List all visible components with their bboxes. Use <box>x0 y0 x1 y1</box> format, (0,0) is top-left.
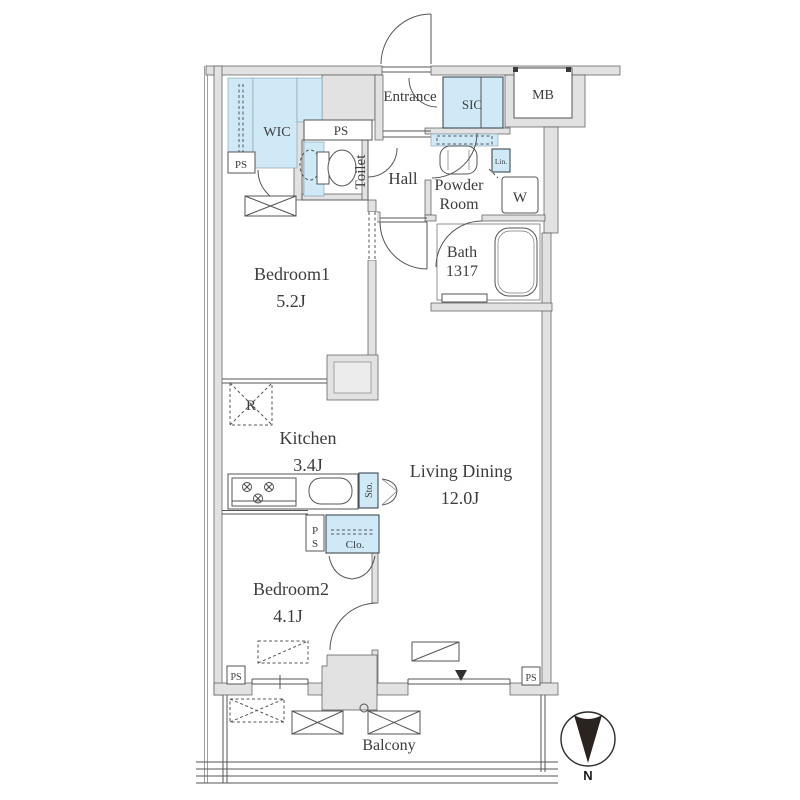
refrigerator-label: R <box>246 398 256 414</box>
mb-label: MB <box>532 88 554 103</box>
wall-segment <box>214 683 252 695</box>
ps-label: PS <box>230 672 241 683</box>
kitchen-size-label: 3.4J <box>293 455 323 475</box>
powder-room-label-1: Powder <box>435 177 485 194</box>
kitchen-area: R Kitchen 3.4J Sto. <box>228 383 397 509</box>
wall-segment <box>377 683 408 695</box>
wall-segment <box>322 75 375 120</box>
toilet-tank <box>317 152 329 184</box>
toilet-room: Toilet <box>300 140 397 200</box>
toilet-bowl <box>328 150 356 186</box>
bathtub <box>495 228 537 296</box>
wall-segment <box>214 66 222 695</box>
floor-plan-page: MB WIC PS PS Entrance SIC Toil <box>0 0 800 800</box>
bedroom2-area: Bedroom2 4.1J <box>253 579 377 663</box>
wall-segment <box>372 553 378 603</box>
north-label: N <box>583 768 592 783</box>
bedroom2-label: Bedroom2 <box>253 579 329 599</box>
powder-room: Powder Room Lin. W <box>431 133 538 213</box>
ps-letter-s: S <box>312 538 318 550</box>
living-window <box>408 670 510 684</box>
storage-label: Sto. <box>364 482 375 498</box>
bedroom2-door-arc <box>330 603 377 650</box>
ps-letter-p: P <box>312 525 318 537</box>
bathroom: Bath 1317 <box>436 221 540 302</box>
ps-label: PS <box>525 673 536 684</box>
wall-segment <box>425 128 510 134</box>
wall-segment <box>431 303 552 311</box>
wall-segment <box>375 75 383 140</box>
kitchen-label: Kitchen <box>280 428 337 448</box>
wall-segment <box>368 260 376 357</box>
hall-door-arc <box>380 222 427 269</box>
meter-box: MB <box>513 67 572 118</box>
washer-label: W <box>513 190 528 206</box>
bedroom2-window <box>252 675 308 689</box>
entrance-area: Entrance <box>381 14 437 137</box>
ps-label: PS <box>334 123 348 138</box>
closet-block: P S Clo. <box>306 515 379 579</box>
living-dining-area: Living Dining 12.0J <box>410 461 513 661</box>
closet-door-arc <box>329 556 352 579</box>
bath-label: Bath <box>447 244 477 261</box>
linen-label: Lin. <box>495 157 507 166</box>
wall-segment <box>482 215 545 221</box>
bath-counter <box>442 294 487 302</box>
ps-label: PS <box>235 159 247 171</box>
entrance-door-arc <box>381 14 431 64</box>
living-label: Living Dining <box>410 461 513 481</box>
wall-segment <box>368 200 376 212</box>
wall-segment <box>308 683 324 695</box>
wall-segment <box>206 66 382 75</box>
living-size-label: 12.0J <box>441 488 480 508</box>
entrance-label: Entrance <box>383 89 437 105</box>
wall-segment <box>425 180 431 215</box>
closet-label: Clo. <box>346 539 365 551</box>
compass: N <box>561 712 615 783</box>
pillar-column <box>327 355 378 400</box>
hall-label: Hall <box>388 169 418 188</box>
bedroom2-size-label: 4.1J <box>273 606 303 626</box>
hall-area: Hall <box>367 169 427 269</box>
bedroom1-size-label: 5.2J <box>276 291 306 311</box>
toilet-label: Toilet <box>353 154 369 190</box>
wall-segment <box>544 127 558 233</box>
powder-room-label-2: Room <box>439 196 479 213</box>
stove <box>232 478 296 506</box>
floor-plan: MB WIC PS PS Entrance SIC Toil <box>0 0 800 800</box>
bedroom1-label: Bedroom1 <box>254 264 330 284</box>
balcony-label: Balcony <box>362 737 415 754</box>
wic-label: WIC <box>263 125 290 140</box>
sic-label: SIC <box>462 97 482 112</box>
kitchen-sink <box>309 478 352 504</box>
wall-column-balcony <box>322 655 377 710</box>
wall-segment <box>542 233 551 683</box>
bath-size-label: 1317 <box>446 263 478 280</box>
